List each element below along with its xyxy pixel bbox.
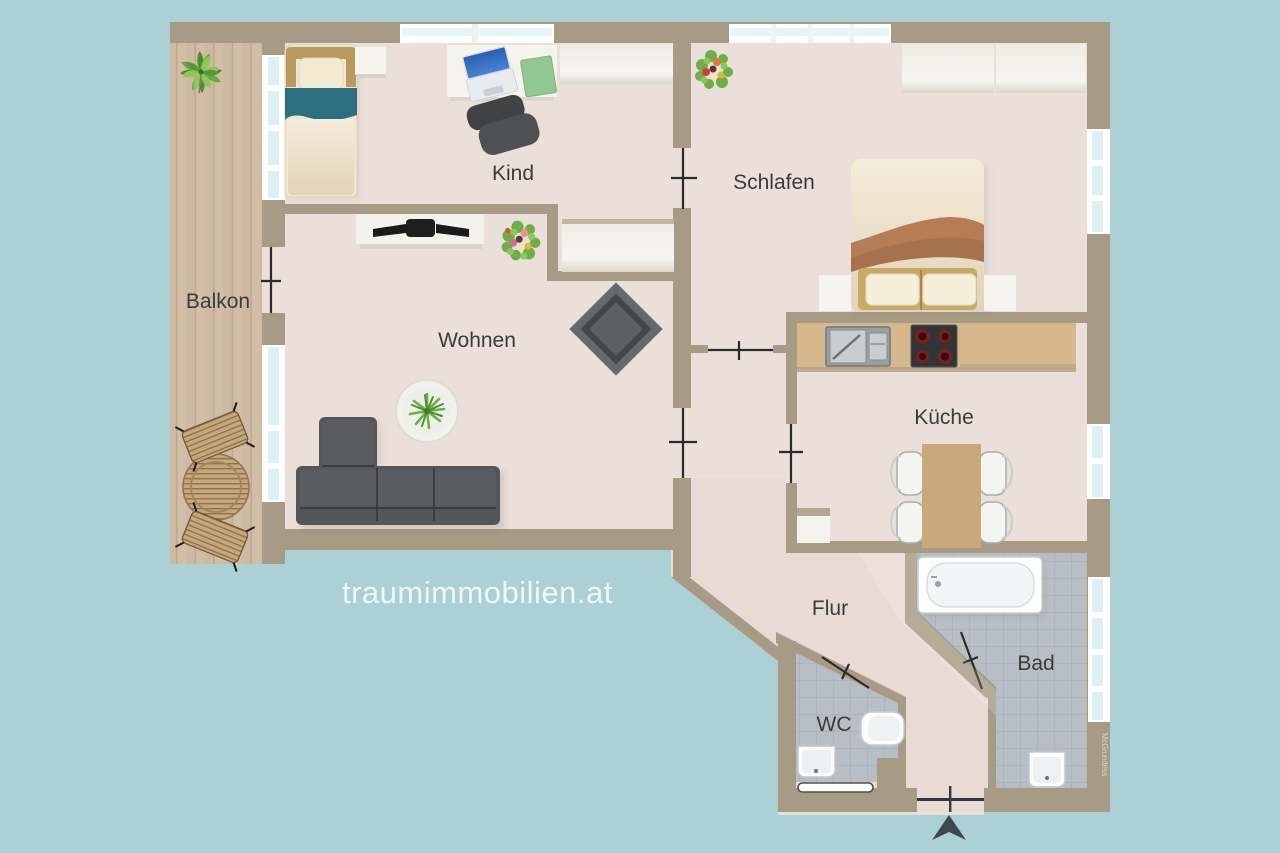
svg-text:Bad: Bad [1017, 652, 1054, 675]
svg-text:Küche: Küche [914, 406, 974, 429]
svg-text:WC: WC [817, 713, 852, 736]
svg-text:Kind: Kind [492, 162, 534, 185]
svg-text:Wohnen: Wohnen [438, 329, 516, 352]
svg-text:traumimmobilien.at: traumimmobilien.at [342, 575, 613, 610]
svg-text:McGrundriss: McGrundriss [1100, 733, 1109, 776]
svg-text:Balkon: Balkon [186, 290, 250, 313]
svg-text:Schlafen: Schlafen [733, 171, 815, 194]
svg-text:Flur: Flur [812, 597, 848, 620]
